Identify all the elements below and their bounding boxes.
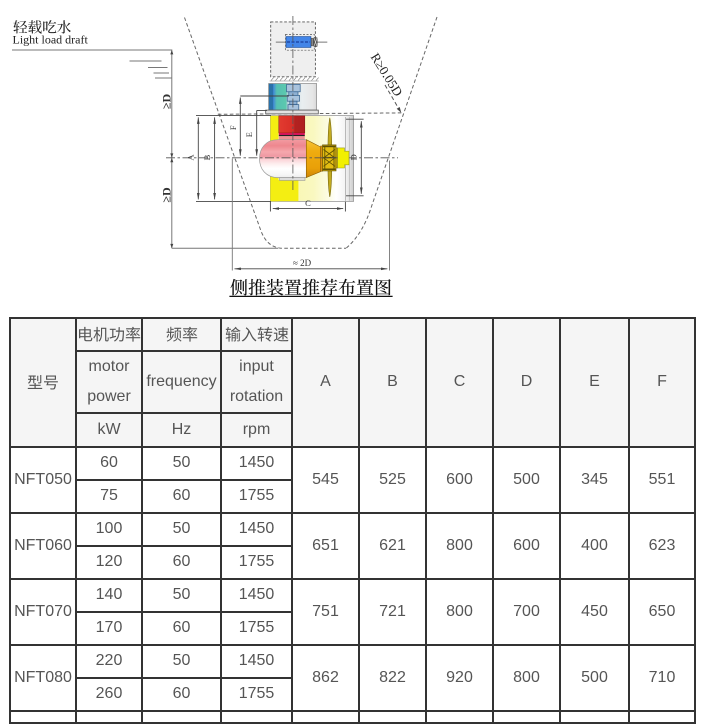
svg-text:C: C: [305, 198, 311, 208]
svg-text:≥D: ≥D: [159, 94, 173, 110]
svg-text:F: F: [228, 125, 238, 130]
svg-text:E: E: [244, 132, 254, 137]
svg-text:R≥0.05D: R≥0.05D: [368, 50, 406, 99]
svg-text:A: A: [186, 154, 196, 161]
svg-text:≥D: ≥D: [159, 187, 173, 203]
svg-text:Light load draft: Light load draft: [13, 33, 89, 47]
svg-text:B: B: [202, 154, 212, 160]
svg-text:D: D: [349, 154, 359, 160]
svg-text:≈ 2D: ≈ 2D: [293, 258, 312, 268]
